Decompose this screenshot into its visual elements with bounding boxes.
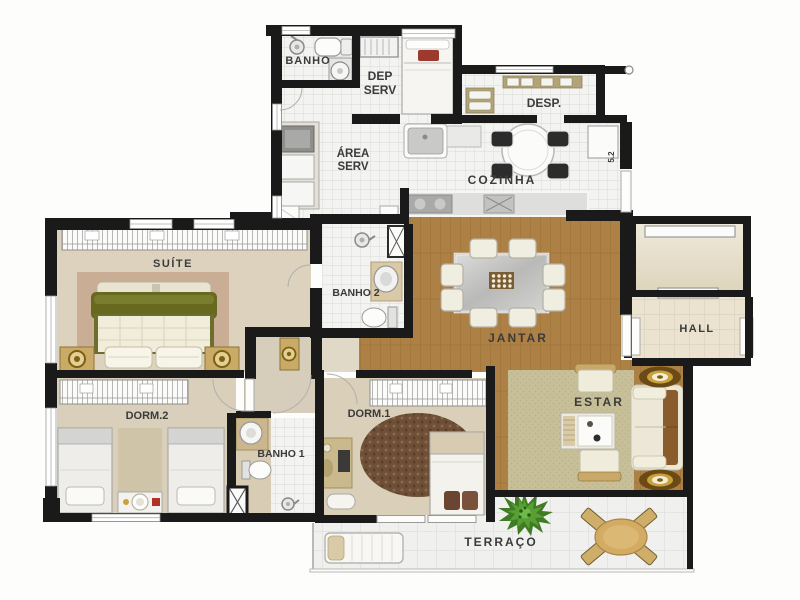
svg-text:SUÍTE: SUÍTE bbox=[153, 257, 193, 270]
svg-text:COZINHA: COZINHA bbox=[468, 173, 537, 187]
svg-text:DORM.2: DORM.2 bbox=[126, 410, 169, 422]
svg-text:SERV: SERV bbox=[337, 161, 368, 173]
svg-text:HALL: HALL bbox=[679, 323, 714, 335]
svg-text:TERRAÇO: TERRAÇO bbox=[464, 535, 537, 549]
svg-text:BANHO 1: BANHO 1 bbox=[257, 448, 304, 460]
svg-text:JANTAR: JANTAR bbox=[488, 331, 548, 345]
svg-text:5.2: 5.2 bbox=[607, 151, 616, 163]
svg-text:DEP: DEP bbox=[368, 69, 393, 83]
svg-text:BANHO 2: BANHO 2 bbox=[332, 287, 379, 299]
svg-text:ÁREA: ÁREA bbox=[337, 147, 370, 160]
svg-text:SERV: SERV bbox=[364, 83, 396, 97]
svg-text:DESP.: DESP. bbox=[527, 96, 561, 110]
svg-text:DORM.1: DORM.1 bbox=[348, 408, 391, 420]
svg-text:ESTAR: ESTAR bbox=[574, 395, 624, 409]
svg-text:BANHO: BANHO bbox=[285, 55, 330, 67]
